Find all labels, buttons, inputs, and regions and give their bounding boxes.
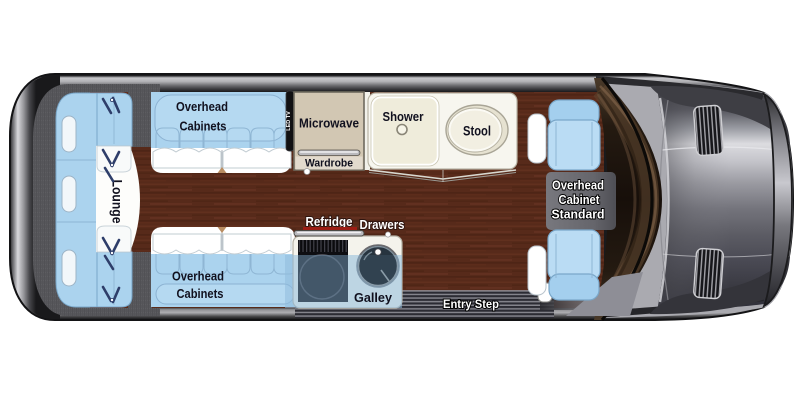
svg-text:Cabinets: Cabinets [180, 119, 227, 134]
svg-text:LED TV: LED TV [286, 111, 292, 131]
svg-text:Wardrobe: Wardrobe [305, 158, 353, 170]
svg-text:Overhead: Overhead [176, 99, 228, 114]
svg-text:Overhead: Overhead [552, 178, 604, 193]
svg-text:Standard: Standard [552, 207, 605, 222]
svg-text:Stool: Stool [463, 123, 491, 139]
svg-text:Cabinet: Cabinet [559, 192, 601, 207]
svg-text:Cabinets: Cabinets [177, 286, 224, 301]
svg-text:Refridge: Refridge [306, 214, 353, 229]
svg-text:Drawers: Drawers [360, 217, 405, 232]
svg-text:Shower: Shower [383, 109, 424, 124]
svg-text:Lounge: Lounge [110, 180, 125, 224]
svg-text:Galley: Galley [354, 290, 393, 305]
svg-text:Overhead: Overhead [172, 269, 224, 284]
svg-text:Entry Step: Entry Step [443, 299, 499, 311]
svg-text:Microwave: Microwave [299, 116, 359, 131]
